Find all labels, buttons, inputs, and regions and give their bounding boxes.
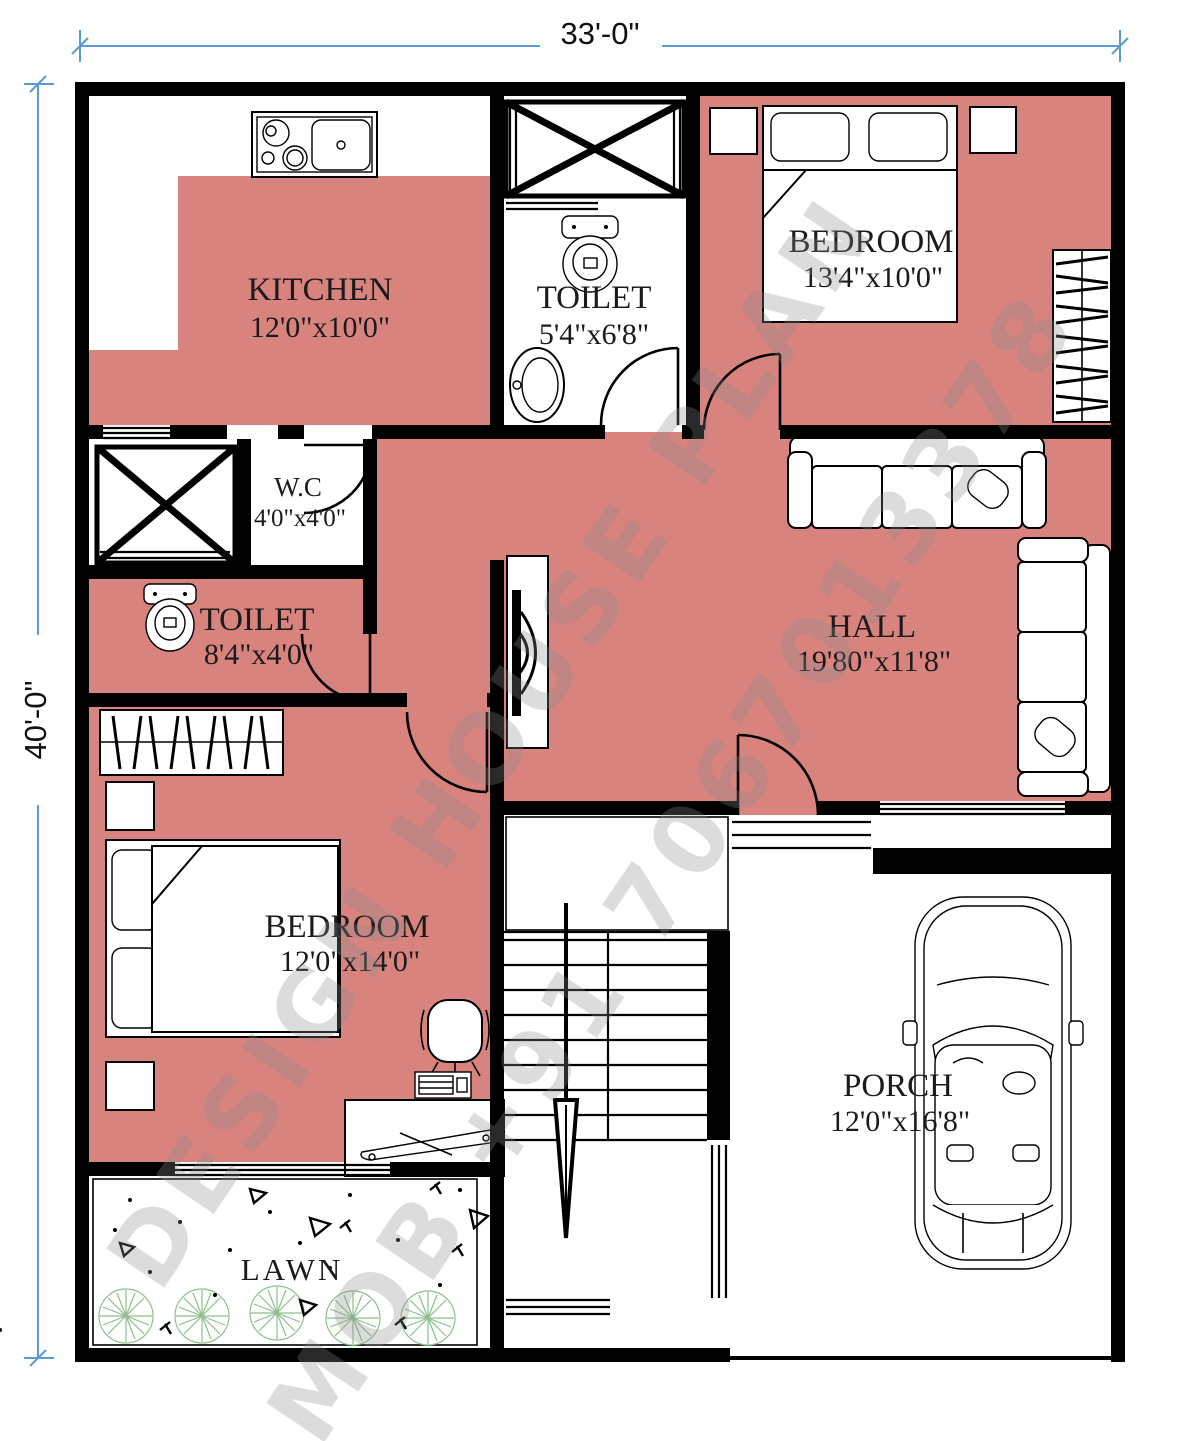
wash-basin-icon (510, 348, 564, 422)
height-dimension-label: 40'-0" (18, 681, 53, 760)
wc-label: W.C (274, 472, 322, 502)
bedside-table-icon (106, 782, 154, 830)
width-dimension-label: 33'-0" (561, 16, 640, 51)
dimension-top: 33'-0" (72, 16, 1128, 62)
shaft-left-icon (97, 447, 235, 563)
toilet-left-label: TOILET (200, 602, 315, 638)
dimension-left: 40'-0" (18, 76, 54, 1366)
kitchen-size: 12'0"x10'0" (250, 311, 390, 344)
kitchen-label: KITCHEN (248, 272, 393, 308)
wardrobe-icon (100, 710, 283, 775)
bedside-table-icon (970, 107, 1016, 153)
porch-label: PORCH (843, 1068, 953, 1104)
floor-plan: KITCHEN 12'0"x10'0" TOILET 5'4"x6'8" BED… (0, 0, 1200, 1441)
floor-plan-canvas: KITCHEN 12'0"x10'0" TOILET 5'4"x6'8" BED… (0, 0, 1200, 1441)
wc-size: 4'0"x4'0" (254, 505, 346, 532)
toilet-top-label: TOILET (537, 280, 652, 316)
sofa-icon (1018, 538, 1110, 796)
toilet-left-wc-icon (144, 584, 196, 651)
tree-icon (99, 1289, 153, 1343)
bedside-table-icon (710, 108, 757, 154)
toilet-left-size: 8'4"x4'0" (204, 638, 314, 671)
shaft-top-icon (506, 102, 684, 209)
kitchen-sink-counter-icon (252, 112, 377, 177)
porch-size: 12'0"x16'8" (830, 1105, 970, 1138)
toilet-top-size: 5'4"x6'8" (539, 318, 649, 351)
bedside-table-icon (106, 1062, 154, 1110)
